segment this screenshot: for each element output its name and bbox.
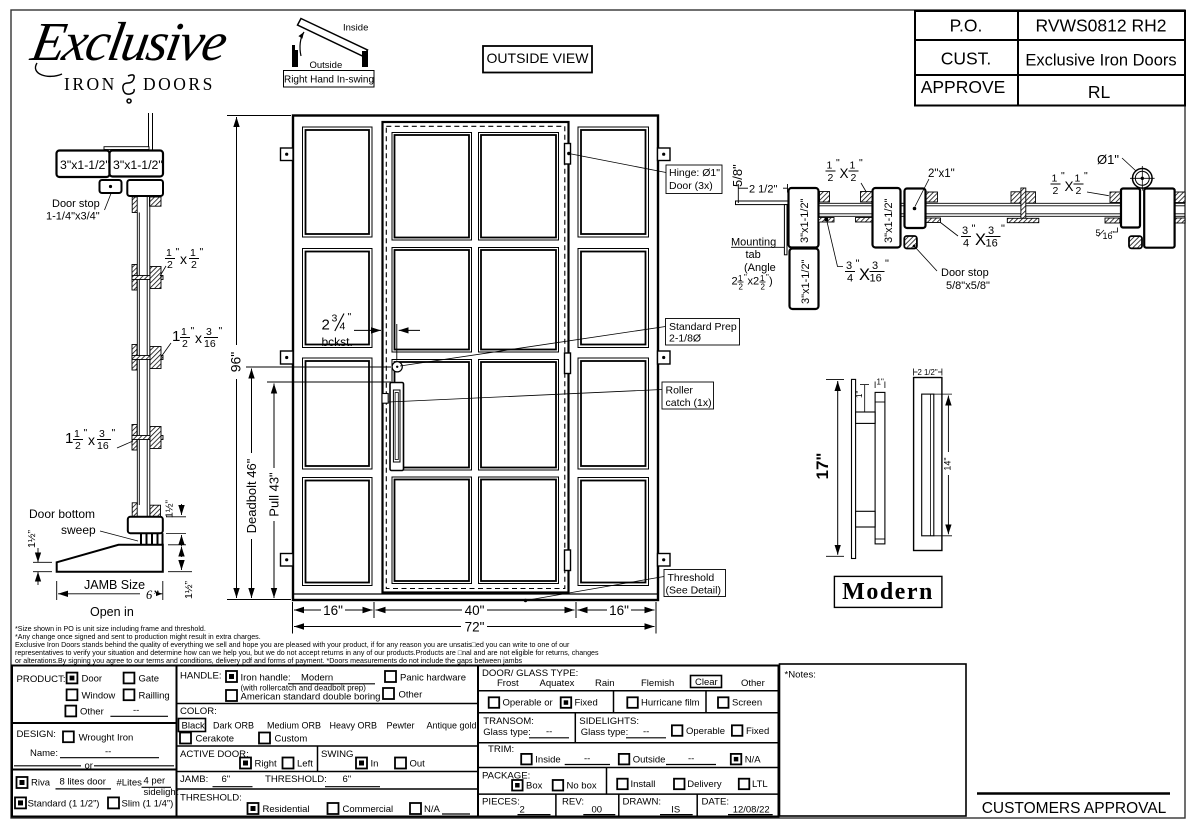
svg-text:2: 2 — [1076, 185, 1082, 197]
svg-text:x2: x2 — [748, 276, 760, 288]
svg-text:3: 3 — [988, 225, 994, 237]
svg-text:2: 2 — [732, 276, 738, 288]
svg-text:Name:: Name: — [30, 748, 58, 759]
svg-text:Other: Other — [399, 690, 423, 701]
svg-text:Deadbolt 46": Deadbolt 46" — [244, 458, 259, 533]
svg-text:": " — [200, 246, 204, 258]
svg-text:Door stop: Door stop — [52, 198, 100, 210]
svg-text:THRESHOLD:: THRESHOLD: — [265, 774, 327, 785]
svg-text:Panic hardware: Panic hardware — [400, 673, 466, 684]
svg-text:2: 2 — [739, 283, 744, 292]
svg-text:): ) — [769, 276, 773, 288]
svg-text:Delivery: Delivery — [687, 779, 722, 790]
svg-text:2: 2 — [322, 317, 330, 334]
svg-text:17": 17" — [813, 453, 832, 480]
svg-text:": " — [859, 157, 863, 169]
svg-text:16: 16 — [97, 440, 109, 452]
svg-text:Outside: Outside — [633, 755, 666, 766]
svg-text:Door (3x): Door (3x) — [669, 180, 713, 192]
svg-text:bckst.: bckst. — [322, 335, 353, 349]
svg-text:Inside: Inside — [535, 755, 560, 766]
svg-text:96": 96" — [228, 352, 244, 373]
svg-text:ACTIVE DOOR:: ACTIVE DOOR: — [180, 749, 249, 760]
svg-text:X: X — [840, 166, 849, 181]
svg-text:1": 1" — [855, 391, 864, 398]
svg-text:6": 6" — [343, 774, 352, 785]
svg-text:OUTSIDE VIEW: OUTSIDE VIEW — [487, 50, 590, 66]
svg-text:3"x1-1/2": 3"x1-1/2" — [800, 259, 812, 304]
svg-text:6”: 6” — [146, 588, 159, 602]
svg-text:HANDLE:: HANDLE: — [180, 671, 222, 682]
svg-text:Install: Install — [631, 779, 656, 790]
svg-text:Left: Left — [297, 759, 313, 770]
svg-text:14": 14" — [943, 457, 953, 470]
svg-text:Hinge: Ø1": Hinge: Ø1" — [669, 167, 720, 179]
svg-text:x: x — [88, 432, 95, 448]
svg-text:PRODUCT:: PRODUCT: — [17, 674, 66, 685]
svg-text:Door stop: Door stop — [941, 267, 989, 279]
svg-text:5/8"x5/8": 5/8"x5/8" — [946, 280, 990, 292]
svg-text:Door bottom: Door bottom — [29, 507, 95, 521]
svg-text:*Notes:: *Notes: — [785, 670, 816, 681]
svg-text:": " — [219, 325, 223, 337]
svg-text:72": 72" — [465, 620, 485, 635]
svg-text:3: 3 — [332, 313, 338, 325]
svg-text:N/A: N/A — [745, 755, 762, 766]
svg-text:16: 16 — [204, 338, 216, 350]
svg-text:Fixed: Fixed — [575, 698, 598, 709]
svg-text:CUST.: CUST. — [941, 49, 992, 69]
svg-text:3: 3 — [99, 428, 105, 440]
svg-text:or alterations.By signing you: or alterations.By signing you agree to o… — [15, 657, 523, 665]
svg-text:TRANSOM:: TRANSOM: — [483, 716, 534, 727]
svg-text:Hurricane film: Hurricane film — [641, 698, 700, 709]
svg-text:3"x1-1/2": 3"x1-1/2" — [883, 198, 895, 243]
svg-text:": " — [176, 246, 180, 258]
svg-text:No box: No box — [567, 781, 597, 792]
svg-text:sweep: sweep — [61, 523, 96, 537]
svg-text:": " — [1001, 223, 1005, 235]
svg-text:(See Detail): (See Detail) — [666, 585, 721, 597]
svg-text:3: 3 — [206, 326, 212, 338]
svg-text:JAMB Size: JAMB Size — [84, 578, 145, 592]
svg-text:Flemish: Flemish — [641, 678, 674, 689]
svg-text:12/08/22: 12/08/22 — [733, 805, 770, 816]
svg-text:*Any change once signed and se: *Any change once signed and sent to prod… — [15, 633, 261, 641]
svg-text:--: -- — [546, 727, 552, 738]
svg-text:(Angle: (Angle — [744, 262, 776, 274]
svg-text:Modern: Modern — [842, 579, 934, 605]
svg-text:40": 40" — [465, 603, 485, 618]
svg-text:Door: Door — [82, 674, 103, 685]
svg-text:Box: Box — [526, 781, 543, 792]
svg-text:Antique gold: Antique gold — [427, 721, 477, 731]
svg-text:Standard Prep: Standard Prep — [669, 321, 737, 333]
svg-text:2-1/8Ø: 2-1/8Ø — [669, 333, 701, 345]
svg-text:Other: Other — [80, 707, 104, 718]
svg-text:8 lites door: 8 lites door — [60, 777, 106, 788]
svg-text:16": 16" — [323, 603, 343, 618]
svg-text:x: x — [195, 330, 202, 346]
svg-text:1-1/4"x3/4": 1-1/4"x3/4" — [46, 211, 100, 223]
svg-text:Gate: Gate — [139, 674, 160, 685]
svg-text:Inside: Inside — [343, 23, 368, 34]
svg-text:00: 00 — [592, 805, 603, 816]
svg-text:or: or — [85, 761, 93, 772]
svg-text:#Lites: #Lites — [117, 778, 143, 789]
svg-text:Frost: Frost — [497, 678, 519, 689]
svg-text:--: -- — [105, 747, 111, 758]
svg-text:1: 1 — [181, 326, 187, 338]
svg-text:Window: Window — [82, 691, 116, 702]
svg-text:2: 2 — [828, 172, 834, 184]
svg-text:Fixed: Fixed — [746, 726, 769, 737]
svg-text:Exclusive: Exclusive — [26, 11, 232, 72]
svg-text:Commercial: Commercial — [343, 804, 394, 815]
svg-text:4: 4 — [847, 273, 853, 285]
svg-text:Outside: Outside — [310, 60, 343, 71]
svg-text:--: -- — [643, 727, 649, 738]
svg-text:P.O.: P.O. — [950, 16, 983, 36]
svg-text:DOORS: DOORS — [143, 74, 215, 94]
svg-text:": " — [1111, 230, 1114, 239]
svg-text:Black: Black — [182, 721, 205, 732]
svg-text:Rain: Rain — [595, 678, 615, 689]
svg-text:sidelight: sidelight — [144, 787, 179, 798]
svg-text:2 1/2": 2 1/2" — [918, 368, 938, 377]
svg-text:1½”: 1½” — [164, 499, 176, 518]
svg-text:Threshold: Threshold — [668, 572, 715, 584]
svg-text:--: -- — [584, 754, 590, 765]
svg-text:1: 1 — [65, 430, 73, 447]
svg-text:Glass type:: Glass type: — [581, 727, 629, 738]
svg-text:16": 16" — [609, 603, 629, 618]
svg-text:TRIM:: TRIM: — [488, 744, 514, 755]
svg-text:THRESHOLD:: THRESHOLD: — [180, 793, 242, 804]
svg-text:--: -- — [133, 705, 139, 716]
svg-text:2"x1": 2"x1" — [928, 168, 955, 180]
svg-text:Ø1": Ø1" — [1097, 152, 1119, 167]
svg-text:2: 2 — [191, 259, 197, 271]
svg-text:Pull 43": Pull 43" — [267, 472, 282, 517]
svg-text:Operable: Operable — [686, 726, 725, 737]
svg-text:16: 16 — [986, 238, 998, 250]
svg-text:1½”: 1½” — [183, 580, 195, 599]
svg-text:Right: Right — [255, 759, 278, 770]
svg-text:Exclusive Iron Doors: Exclusive Iron Doors — [1025, 52, 1176, 70]
svg-text:Out: Out — [410, 759, 426, 770]
svg-text:Dark ORB: Dark ORB — [213, 721, 254, 731]
svg-text:1½”: 1½” — [26, 529, 38, 548]
svg-text:In: In — [371, 759, 379, 770]
svg-text:SIDELIGHTS:: SIDELIGHTS: — [579, 716, 639, 727]
svg-text:16: 16 — [870, 273, 882, 285]
svg-text:5/8": 5/8" — [730, 164, 745, 187]
svg-text:Wrought Iron: Wrought Iron — [79, 733, 134, 744]
svg-text:X: X — [859, 266, 870, 284]
svg-text:2: 2 — [851, 172, 857, 184]
svg-text:American standard double borin: American standard double boring — [241, 692, 381, 703]
svg-text:*Size shown in PO is unit size: *Size shown in PO is unit size including… — [15, 625, 206, 633]
svg-text:DATE:: DATE: — [702, 797, 730, 808]
svg-text:2 1/2": 2 1/2" — [749, 184, 777, 196]
svg-text:1: 1 — [172, 328, 180, 345]
svg-text:2: 2 — [167, 259, 173, 271]
svg-text:2: 2 — [75, 440, 81, 452]
svg-text:": " — [1084, 170, 1088, 182]
svg-text:Right Hand In-swing: Right Hand In-swing — [284, 75, 374, 86]
svg-text:Slim (1 1/4”): Slim (1 1/4”) — [122, 799, 174, 810]
svg-text:--: -- — [688, 754, 694, 765]
svg-text:Pewter: Pewter — [387, 721, 415, 731]
svg-text:": " — [84, 427, 88, 439]
svg-text:Standard (1 1/2”): Standard (1 1/2”) — [28, 799, 100, 810]
svg-text:RL: RL — [1088, 82, 1111, 102]
svg-text:Residential: Residential — [263, 804, 310, 815]
svg-text:Other: Other — [741, 678, 765, 689]
svg-text:": " — [112, 427, 116, 439]
svg-text:1: 1 — [850, 160, 856, 172]
svg-text:Roller: Roller — [666, 385, 694, 397]
svg-text:3: 3 — [846, 260, 852, 272]
svg-text:PIECES:: PIECES: — [482, 797, 520, 808]
svg-text:2: 2 — [182, 338, 188, 350]
svg-text:1: 1 — [827, 160, 833, 172]
svg-text:Iron handle:: Iron handle: — [241, 673, 291, 684]
svg-text:4 per: 4 per — [144, 776, 166, 787]
svg-text:2: 2 — [1053, 185, 1059, 197]
svg-text:DESIGN:: DESIGN: — [17, 729, 56, 740]
svg-text:Riva: Riva — [31, 778, 51, 789]
svg-text:representatives to verify your: representatives to verify your situation… — [15, 649, 599, 657]
svg-text:Exclusive Iron Doors stands be: Exclusive Iron Doors stands behind the q… — [15, 641, 570, 649]
svg-text:2: 2 — [520, 805, 525, 816]
svg-text:APPROVE: APPROVE — [921, 77, 1006, 97]
svg-text:": " — [348, 311, 352, 323]
svg-text:": " — [191, 325, 195, 337]
svg-text:4: 4 — [340, 321, 346, 333]
svg-text:JAMB:: JAMB: — [180, 774, 208, 785]
svg-text:DRAWN:: DRAWN: — [623, 797, 662, 808]
svg-text:X: X — [1065, 179, 1074, 194]
svg-text:COLOR:: COLOR: — [180, 706, 217, 717]
svg-text:3: 3 — [962, 225, 968, 237]
svg-text:1: 1 — [74, 428, 80, 440]
svg-text:IS: IS — [671, 805, 680, 816]
svg-text:Modern: Modern — [301, 673, 333, 684]
svg-text:1: 1 — [190, 247, 196, 259]
svg-text:SWING: SWING — [321, 749, 354, 760]
svg-text:RVWS0812 RH2: RVWS0812 RH2 — [1036, 16, 1167, 36]
svg-text:Operable or: Operable or — [503, 698, 553, 709]
svg-text:catch (1x): catch (1x) — [666, 397, 712, 409]
svg-text:1: 1 — [1052, 173, 1058, 185]
svg-text:Glass type:: Glass type: — [483, 727, 531, 738]
svg-text:6": 6" — [222, 774, 231, 785]
svg-text:4: 4 — [963, 238, 969, 250]
svg-text:Clear: Clear — [695, 677, 718, 688]
svg-text:Aquatex: Aquatex — [540, 678, 575, 689]
svg-text:Railling: Railling — [139, 691, 170, 702]
svg-text:1: 1 — [166, 247, 172, 259]
svg-text:Medium ORB: Medium ORB — [267, 721, 321, 731]
svg-text:tab: tab — [746, 249, 761, 261]
svg-text:Open in: Open in — [90, 605, 134, 619]
svg-text:x: x — [180, 251, 187, 267]
svg-text:X: X — [975, 231, 986, 249]
svg-text:Custom: Custom — [275, 734, 308, 745]
svg-text:N/A: N/A — [424, 804, 441, 815]
svg-text:Heavy ORB: Heavy ORB — [330, 721, 378, 731]
svg-text:REV:: REV: — [562, 797, 584, 808]
svg-text:": " — [885, 258, 889, 270]
svg-text:Mounting: Mounting — [731, 237, 776, 249]
svg-text:2: 2 — [761, 283, 766, 292]
svg-text:Cerakote: Cerakote — [196, 734, 235, 745]
svg-text:3"x1-1/2": 3"x1-1/2" — [799, 198, 811, 243]
svg-text:3"x1-1/2": 3"x1-1/2" — [60, 158, 110, 172]
svg-text:LTL: LTL — [752, 779, 768, 790]
svg-text:3: 3 — [872, 260, 878, 272]
svg-text:3"x1-1/2": 3"x1-1/2" — [113, 158, 163, 172]
svg-text:1": 1" — [877, 378, 884, 387]
svg-text:Screen: Screen — [732, 698, 762, 709]
svg-text:1: 1 — [1075, 173, 1081, 185]
svg-text:IRON: IRON — [64, 74, 117, 94]
svg-text:CUSTOMERS APPROVAL: CUSTOMERS APPROVAL — [982, 800, 1167, 817]
